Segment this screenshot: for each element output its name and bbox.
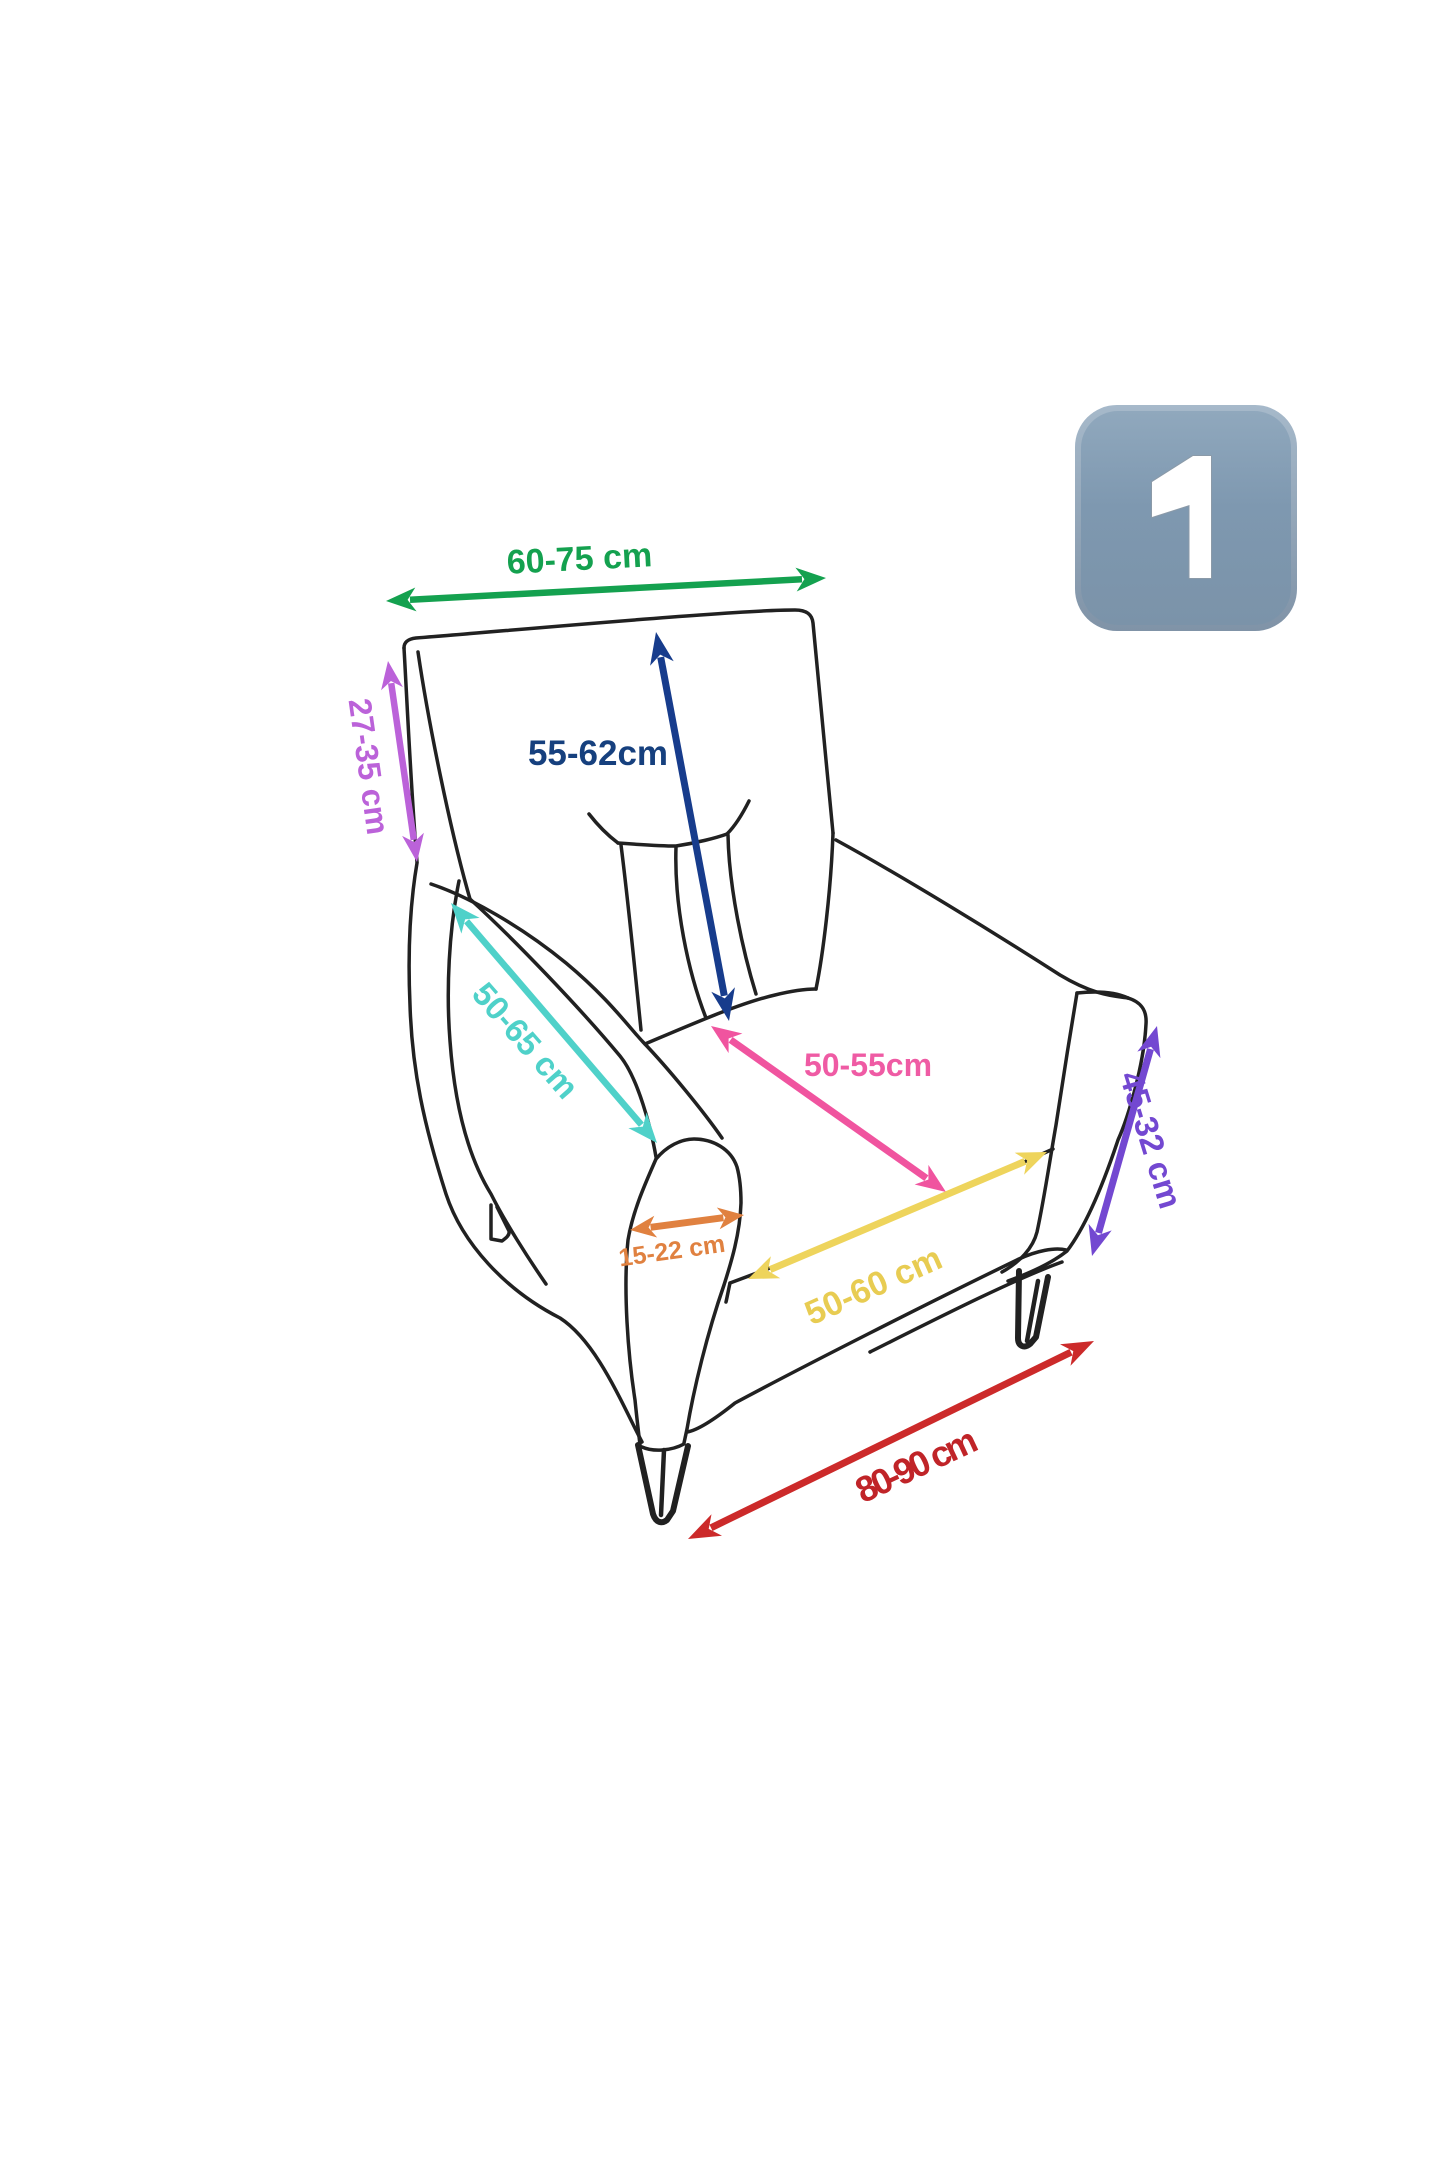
- svg-text:50-55cm: 50-55cm: [804, 1047, 932, 1083]
- svg-text:60-75 cm: 60-75 cm: [506, 536, 653, 582]
- svg-text:55-62cm: 55-62cm: [528, 734, 668, 773]
